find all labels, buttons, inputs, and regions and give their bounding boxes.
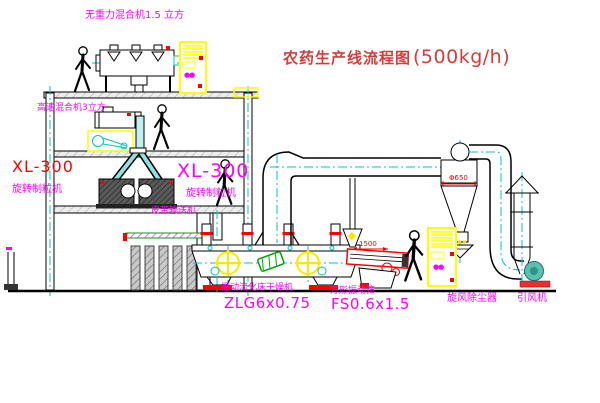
induced-draft-fan [520, 262, 550, 288]
sieve-dimension: 1500 [359, 241, 377, 248]
label-dryer-name: 振动流化床干燥机 [221, 284, 293, 293]
rotary-granulators [96, 179, 177, 209]
left-edge-structure [4, 247, 18, 290]
label-floor2-mixer: 高速混合机3立方 [37, 104, 106, 113]
label-sieve-model: FS0.6x1.5 [331, 297, 410, 312]
person-figure [405, 231, 422, 281]
sieve-feed-line [350, 178, 355, 229]
label-granulator-left-model: XL-300 [12, 159, 74, 175]
title-capacity: (500kg/h) [413, 46, 510, 68]
label-granulator-center-name: 旋转制粒机 [186, 189, 236, 199]
cad-flow-diagram: 农药生产线流程图 (500kg/h) 无重力混合机1.5 立方 高速混合机3立方… [0, 0, 600, 403]
title-text: 农药生产线流程图 [283, 47, 411, 68]
label-granulator-left-name: 旋转制粒机 [12, 185, 62, 195]
label-granulator-center-model: XL-300 [177, 162, 249, 181]
control-cabinet-top [180, 42, 206, 93]
cyclone-dimension: Φ650 [449, 175, 468, 182]
label-fan: 引风机 [517, 294, 547, 304]
person-figure [154, 105, 169, 149]
cabinet-ground-mark: ●● [433, 263, 443, 271]
high-speed-mixer [88, 107, 144, 153]
label-cyclone: 旋风除尘器 [447, 294, 497, 304]
belt-conveyor-machine [123, 233, 202, 290]
control-cabinet-ground [428, 228, 456, 286]
vibrating-sieve [343, 229, 408, 288]
person-figure [75, 47, 90, 91]
label-belt-conveyor: 皮带输送机 [151, 207, 196, 216]
label-dryer-model: ZLG6x0.75 [224, 296, 311, 311]
label-top-mixer: 无重力混合机1.5 立方 [85, 11, 184, 21]
cabinet-top-mark: ●● [184, 71, 194, 79]
gravity-free-mixer [92, 45, 186, 92]
diagram-title: 农药生产线流程图 (500kg/h) [283, 46, 510, 68]
